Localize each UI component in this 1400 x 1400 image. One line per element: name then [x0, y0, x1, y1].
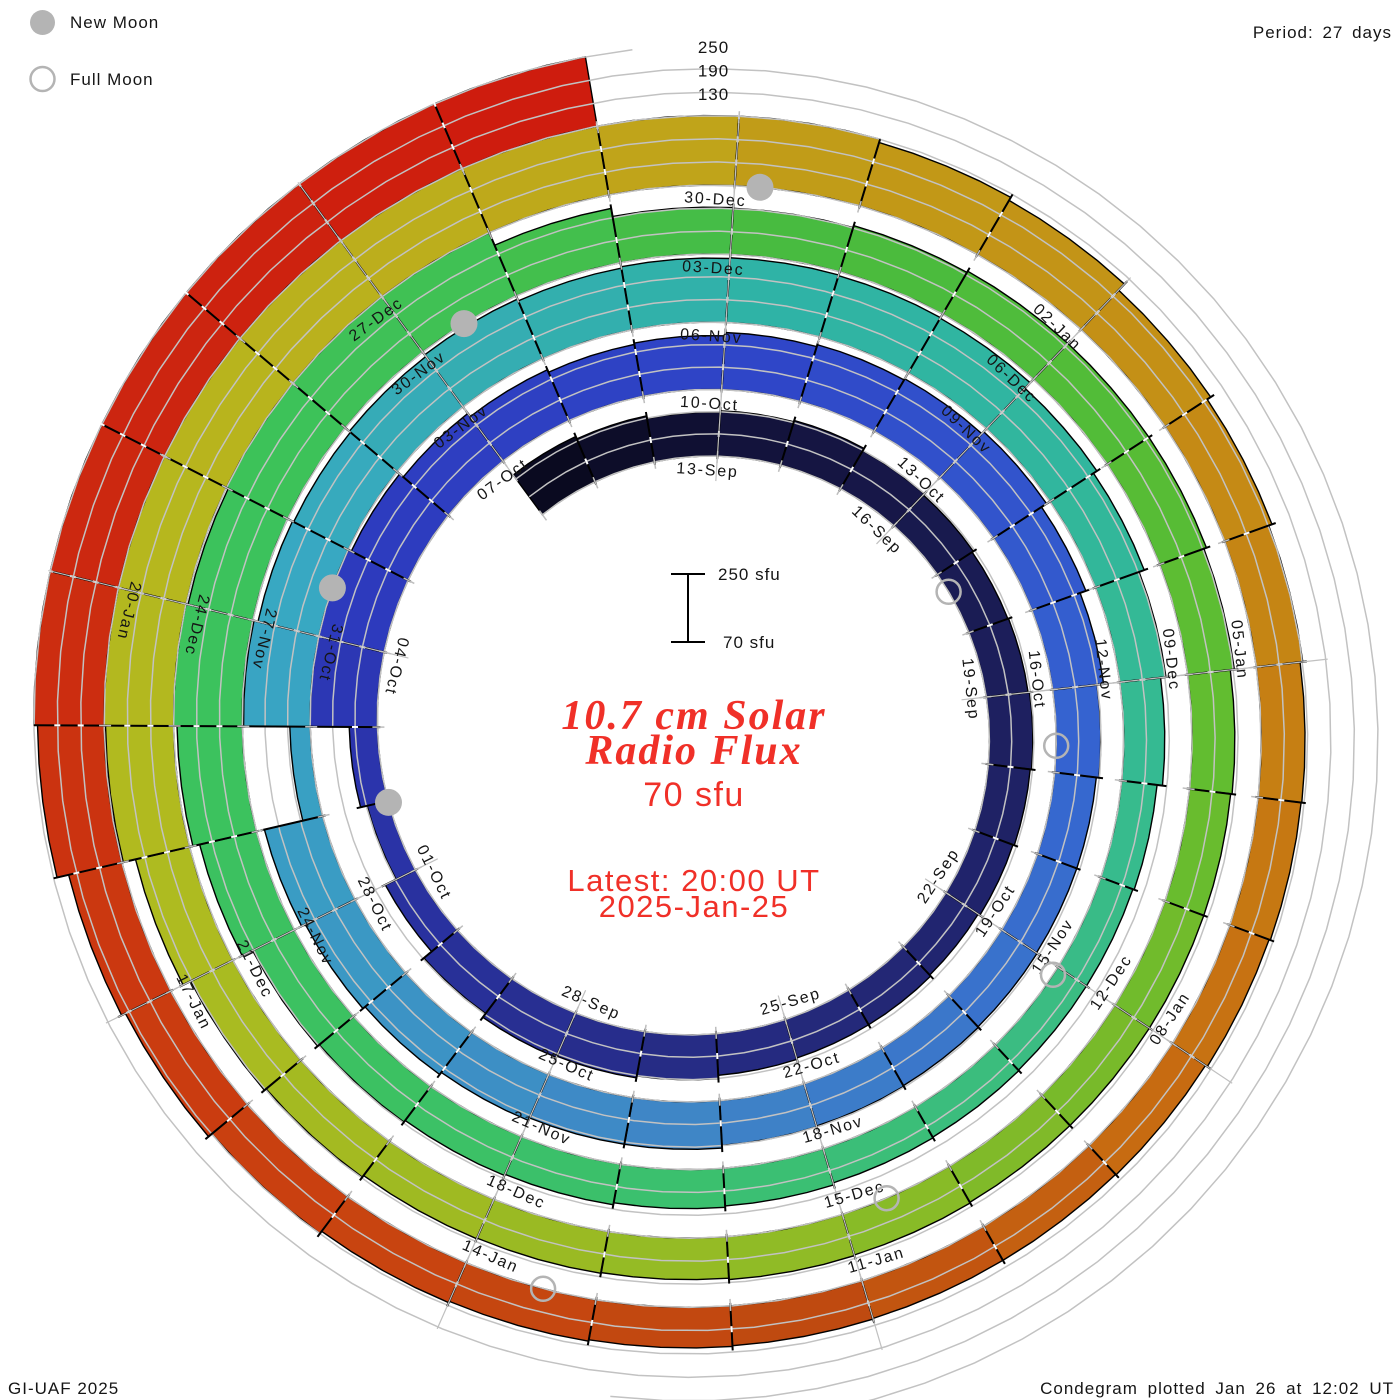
svg-text:GI-UAF 2025: GI-UAF 2025 — [8, 1379, 119, 1398]
svg-text:70 sfu: 70 sfu — [723, 633, 775, 652]
svg-text:2025-Jan-25: 2025-Jan-25 — [599, 889, 790, 924]
svg-text:Period: 27 days: Period: 27 days — [1253, 23, 1392, 42]
svg-text:130: 130 — [698, 85, 729, 104]
svg-text:New Moon: New Moon — [70, 13, 159, 32]
svg-text:Full Moon: Full Moon — [70, 70, 154, 89]
svg-text:Condegram plotted Jan 26 at 12: Condegram plotted Jan 26 at 12:02 UT — [1040, 1379, 1394, 1398]
svg-text:70 sfu: 70 sfu — [643, 776, 745, 814]
svg-text:190: 190 — [698, 62, 729, 81]
svg-text:Radio Flux: Radio Flux — [584, 728, 802, 774]
svg-text:250: 250 — [698, 38, 729, 57]
svg-text:250 sfu: 250 sfu — [718, 565, 781, 584]
